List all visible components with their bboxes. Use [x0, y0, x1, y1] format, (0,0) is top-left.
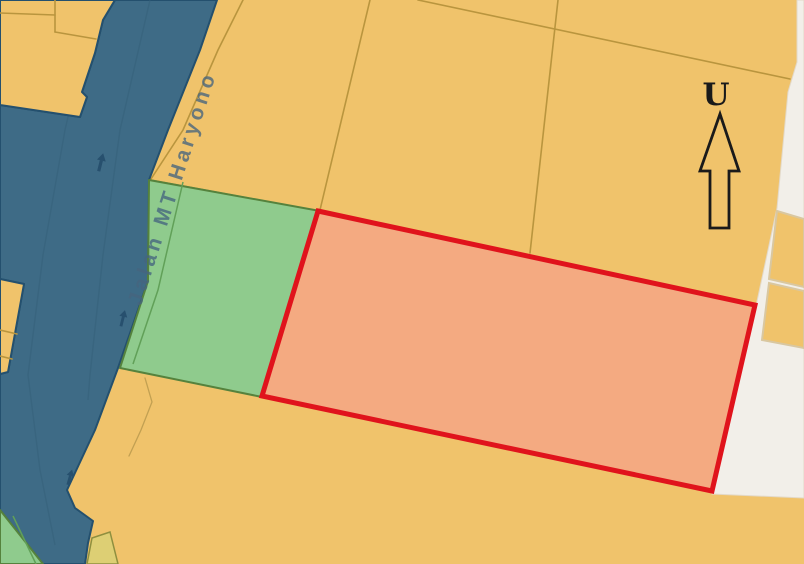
white-region-parcel [762, 283, 804, 348]
zoning-map-canvas: Jalan MT Haryono U [0, 0, 804, 564]
north-label: U [702, 77, 729, 113]
zoning-map: Jalan MT Haryono U [0, 0, 804, 564]
